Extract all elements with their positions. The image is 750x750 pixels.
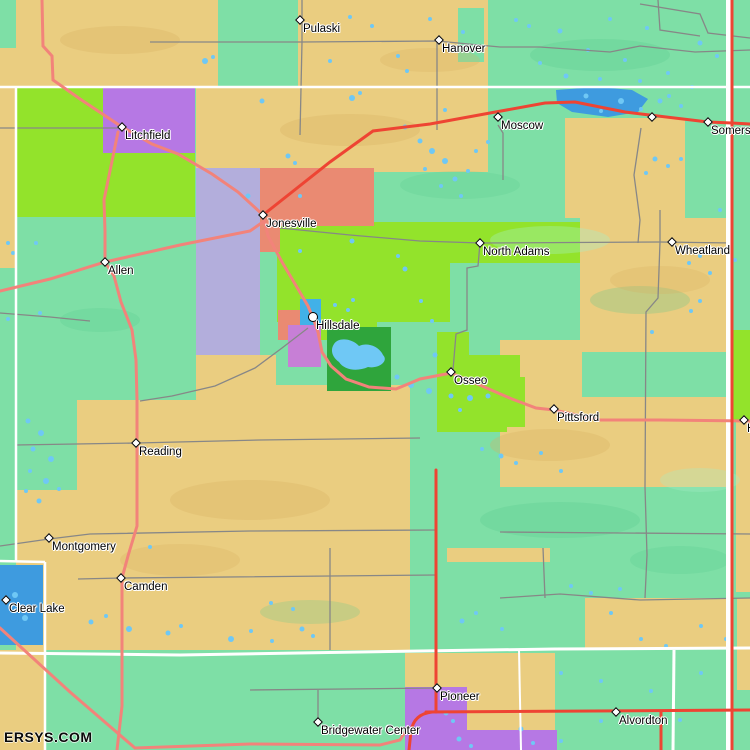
town-labels-layer: PulaskiHanoverMoscowSomersetLitchfieldJo… [0, 0, 750, 750]
town-label: Litchfield [125, 131, 170, 143]
town-label: Hillsdale [316, 321, 359, 333]
town-label: Pulaski [303, 24, 340, 36]
map-canvas[interactable]: PulaskiHanoverMoscowSomersetLitchfieldJo… [0, 0, 750, 750]
town-label: Camden [124, 582, 167, 594]
town-label: Jonesville [266, 219, 317, 231]
town-label: Clear Lake [9, 604, 65, 616]
town-label: Somerset [711, 126, 750, 138]
town-label: Osseo [454, 376, 487, 388]
town-label: Hanover [442, 44, 485, 56]
town-label: Moscow [501, 121, 543, 133]
town-label: Wheatland [675, 246, 730, 258]
town-label: Reading [139, 447, 182, 459]
town-label: Pittsford [557, 413, 599, 425]
town-label: North Adams [483, 247, 549, 259]
town-label: Alvordton [619, 716, 668, 728]
town-label: Pioneer [440, 692, 480, 704]
town-label: Montgomery [52, 542, 116, 554]
watermark: ERSYS.COM [4, 729, 93, 745]
town-marker [647, 112, 657, 122]
town-label: Allen [108, 266, 134, 278]
town-label: Bridgewater Center [321, 726, 420, 738]
